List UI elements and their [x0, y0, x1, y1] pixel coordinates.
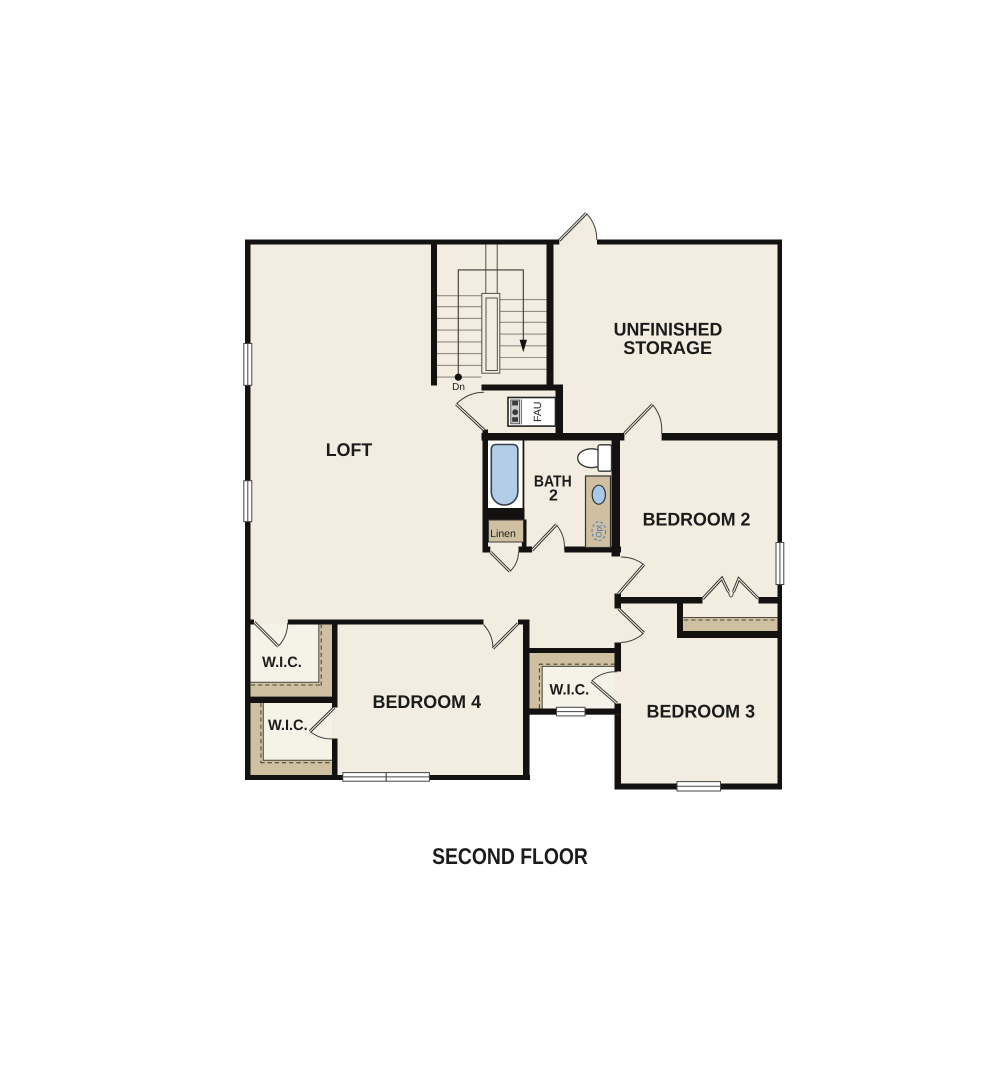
svg-text:Linen: Linen [490, 528, 516, 540]
svg-text:FAU: FAU [532, 402, 544, 422]
svg-text:W.I.C.: W.I.C. [262, 654, 302, 671]
svg-text:Opt: Opt [595, 524, 604, 538]
svg-text:Dn: Dn [452, 382, 465, 393]
svg-text:W.I.C.: W.I.C. [550, 681, 590, 698]
svg-text:W.I.C.: W.I.C. [268, 717, 308, 734]
svg-text:BEDROOM 3: BEDROOM 3 [647, 700, 756, 721]
svg-text:SECOND FLOOR: SECOND FLOOR [432, 843, 588, 869]
svg-text:2: 2 [549, 488, 558, 505]
svg-text:LOFT: LOFT [326, 439, 373, 460]
svg-text:BEDROOM 2: BEDROOM 2 [643, 508, 751, 529]
svg-text:BEDROOM 4: BEDROOM 4 [373, 691, 482, 712]
svg-text:STORAGE: STORAGE [623, 337, 712, 358]
